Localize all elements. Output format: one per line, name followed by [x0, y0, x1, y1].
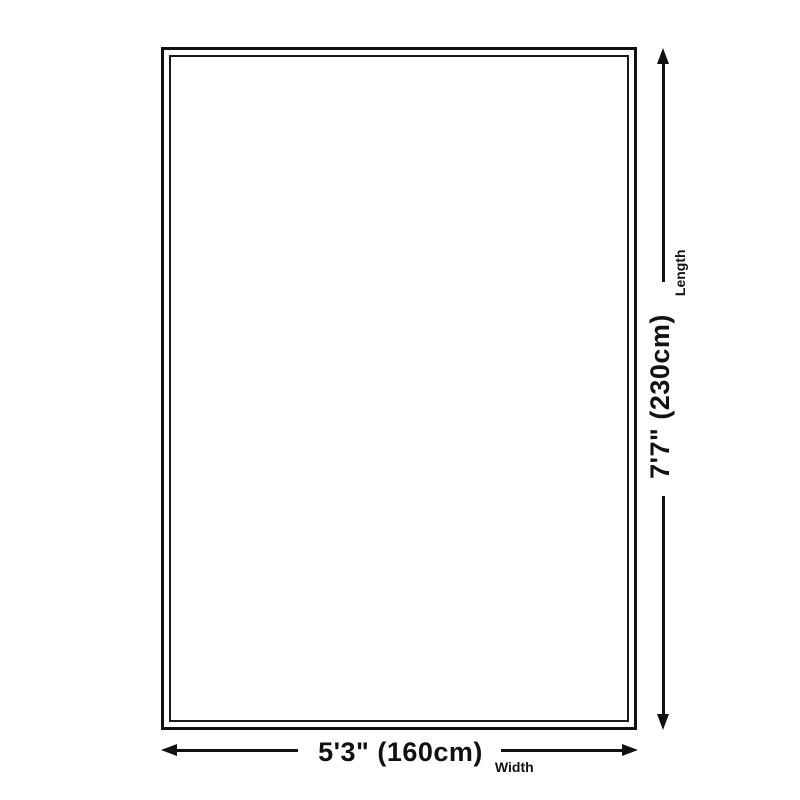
arrowhead-down-icon [657, 714, 669, 730]
rug-inner-border [169, 55, 629, 722]
rug-outline [161, 47, 637, 730]
length-axis-label: Length [672, 249, 688, 296]
length-value-label: 7'7" (230cm) [645, 314, 676, 479]
arrowhead-left-icon [161, 744, 177, 756]
length-dimension-line-segment: Length [662, 64, 665, 282]
length-dimension-annotation: 7'7" (230cm) Length [643, 48, 683, 730]
width-dimension-line-segment [177, 749, 298, 752]
width-axis-label: Width [495, 759, 534, 775]
length-dimension-line-segment [662, 496, 665, 714]
arrowhead-right-icon [622, 744, 638, 756]
rug-size-diagram: 5'3" (160cm) Width 7'7" (230cm) Length [0, 0, 800, 800]
width-value-label: 5'3" (160cm) [318, 737, 483, 768]
arrowhead-up-icon [657, 48, 669, 64]
width-dimension-annotation: 5'3" (160cm) Width [161, 730, 638, 770]
width-dimension-line-segment: Width [501, 749, 622, 752]
